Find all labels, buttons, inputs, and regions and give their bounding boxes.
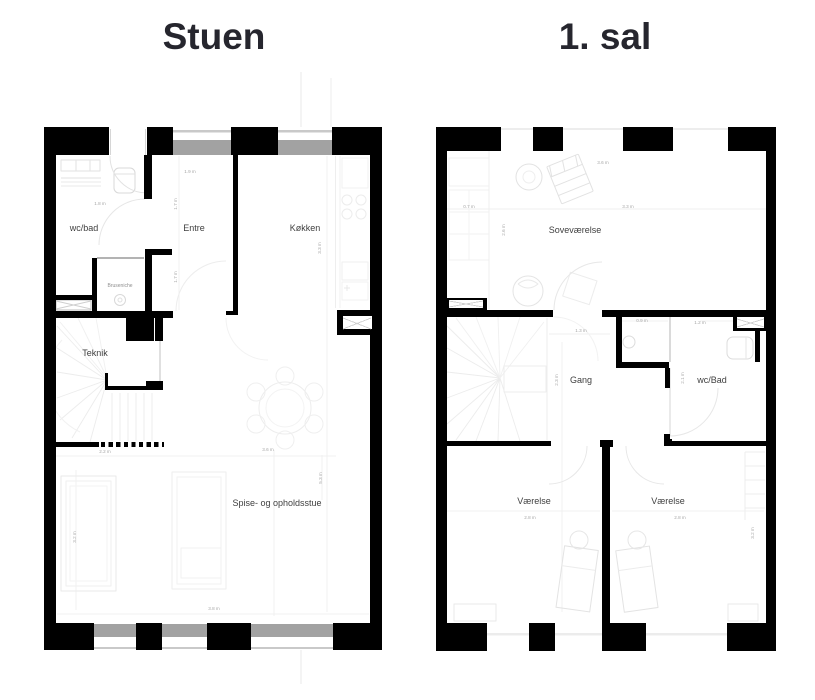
svg-text:Stuen: Stuen	[163, 16, 266, 57]
svg-text:wc/bad: wc/bad	[69, 223, 99, 233]
svg-text:1. sal: 1. sal	[559, 16, 652, 57]
svg-text:1.9 m: 1.9 m	[184, 169, 196, 174]
svg-text:2.1 m: 2.1 m	[680, 372, 685, 384]
svg-text:3.8 m: 3.8 m	[208, 606, 220, 611]
svg-text:3.2 m: 3.2 m	[72, 531, 77, 543]
svg-text:Værelse: Værelse	[517, 496, 551, 506]
svg-text:0.7 m: 0.7 m	[463, 204, 475, 209]
svg-text:1.8 m: 1.8 m	[94, 201, 106, 206]
svg-text:2.8 m: 2.8 m	[674, 515, 686, 520]
svg-text:1.7 m: 1.7 m	[173, 198, 178, 210]
svg-text:Teknik: Teknik	[82, 348, 108, 358]
svg-text:2.8 m: 2.8 m	[524, 515, 536, 520]
svg-text:Gang: Gang	[570, 375, 592, 385]
svg-text:3.3 m: 3.3 m	[317, 242, 322, 254]
svg-text:3.6 m: 3.6 m	[597, 160, 609, 165]
svg-text:5.3 m: 5.3 m	[318, 472, 323, 484]
svg-text:Værelse: Værelse	[651, 496, 685, 506]
svg-text:3.3 m: 3.3 m	[622, 204, 634, 209]
svg-text:2.6 m: 2.6 m	[501, 224, 506, 236]
svg-text:3.6 m: 3.6 m	[262, 447, 274, 452]
svg-text:2.3 m: 2.3 m	[554, 374, 559, 386]
svg-text:Spise- og opholdsstue: Spise- og opholdsstue	[232, 498, 321, 508]
svg-text:Entre: Entre	[183, 223, 205, 233]
svg-text:Bruseniche: Bruseniche	[107, 283, 132, 289]
svg-text:wc/Bad: wc/Bad	[696, 375, 727, 385]
svg-text:Soveværelse: Soveværelse	[549, 225, 602, 235]
svg-text:1.7 m: 1.7 m	[173, 271, 178, 283]
svg-text:3.2 m: 3.2 m	[750, 527, 755, 539]
svg-text:1.3 m: 1.3 m	[575, 328, 587, 333]
svg-text:1.2 m: 1.2 m	[694, 320, 706, 325]
svg-text:2.2 m: 2.2 m	[99, 449, 111, 454]
svg-text:0.9 m: 0.9 m	[636, 318, 648, 323]
svg-text:Køkken: Køkken	[290, 223, 321, 233]
